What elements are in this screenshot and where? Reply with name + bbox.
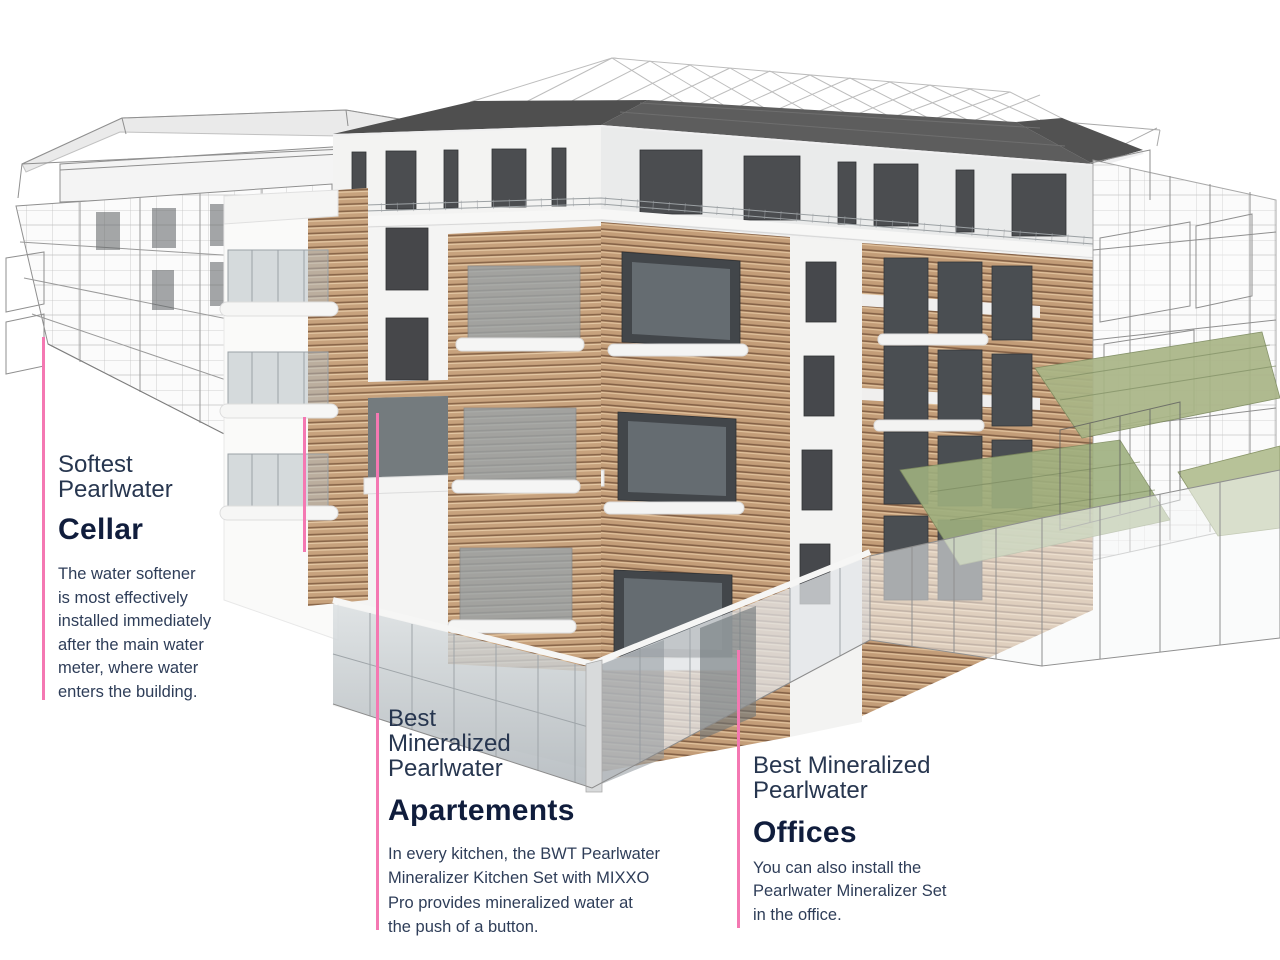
annotation-cellar-title: Cellar bbox=[58, 514, 298, 546]
infographic-canvas: Softest Pearlwater Cellar The water soft… bbox=[0, 0, 1280, 960]
marker-line-cellar bbox=[42, 337, 45, 700]
annotation-apartments-subtitle: Best Mineralized Pearlwater bbox=[388, 706, 708, 781]
annotation-offices-body: You can also install the Pearlwater Mine… bbox=[753, 857, 1003, 927]
marker-line-apartments bbox=[376, 413, 379, 930]
annotation-apartments: Best Mineralized Pearlwater Apartements … bbox=[388, 706, 708, 939]
annotation-apartments-body: In every kitchen, the BWT Pearlwater Min… bbox=[388, 842, 708, 939]
annotation-offices-subtitle: Best Mineralized Pearlwater bbox=[753, 753, 1003, 803]
annotation-cellar: Softest Pearlwater Cellar The water soft… bbox=[58, 452, 298, 704]
annotation-offices-title: Offices bbox=[753, 817, 1003, 849]
annotation-cellar-body: The water softener is most effectively i… bbox=[58, 563, 298, 704]
marker-line-apartment-floor bbox=[303, 417, 306, 552]
annotation-offices: Best Mineralized Pearlwater Offices You … bbox=[753, 753, 1003, 927]
annotation-apartments-title: Apartements bbox=[388, 795, 708, 827]
marker-line-offices bbox=[737, 650, 740, 928]
annotation-cellar-subtitle: Softest Pearlwater bbox=[58, 452, 298, 502]
